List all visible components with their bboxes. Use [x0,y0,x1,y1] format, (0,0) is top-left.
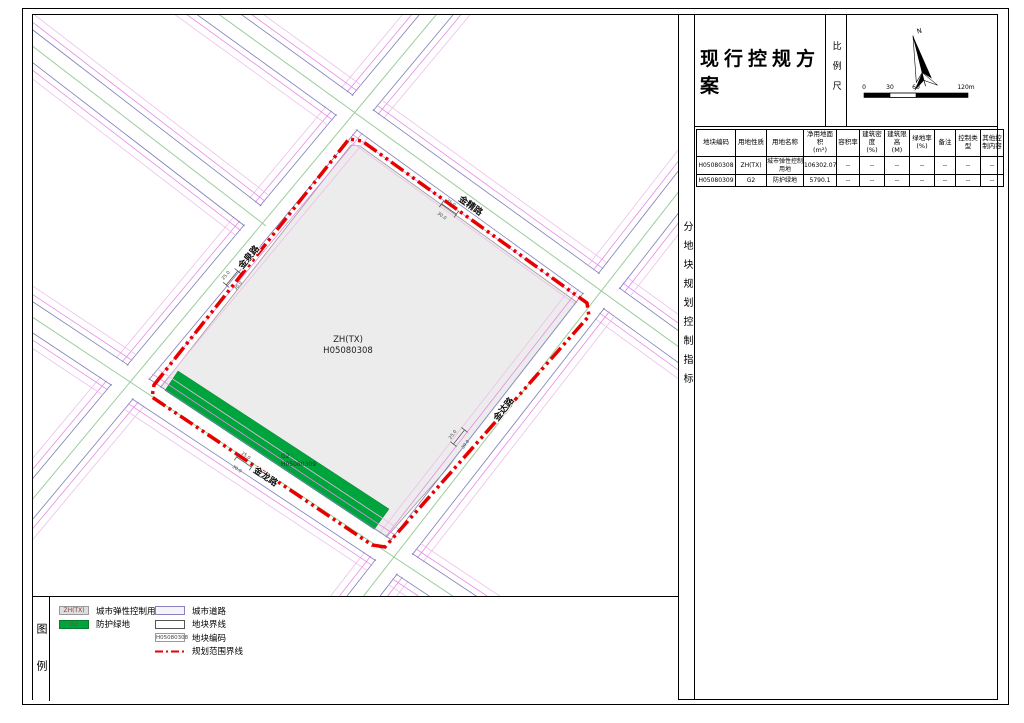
greenbelt-landuse-code: G2 [281,453,290,460]
site-landuse-code: ZH(TX) [333,335,363,345]
indicator-table-head: 地块编码用地性质用地名称净用地面积 (m²)容积率建筑密度 (%)建筑限高 (M… [697,130,1004,157]
legend-items-right: 城市道路地块界线H05080308地块编码规划范围界线 [155,604,243,658]
table-header-cell: 用地名称 [767,130,804,157]
greenbelt-parcel-code: H05080309 [281,461,316,468]
legend-box: 图例 ZH(TX)城市弹性控制用地G2防护绿地 城市道路地块界线H0508030… [33,596,678,701]
table-cell: -- [981,175,1004,187]
table-cell: -- [935,157,956,175]
title-block-header-row: 现行控规方案 比例尺 N [695,15,997,127]
sheet-title: 现行控规方案 [695,15,825,126]
legend-item-label: 城市道路 [192,605,226,617]
title-block: 现行控规方案 比例尺 N [695,15,997,699]
table-header-cell: 净用地面积 (m²) [804,130,837,157]
legend-swatch-text: ZH(TX) [60,607,88,615]
table-header-cell: 其他控制内容 [981,130,1004,157]
planning-sheet: 25.030.025.030.025.030.025.030.0 金泉路 金精路… [0,0,1024,723]
table-header-cell: 用地性质 [736,130,767,157]
legend-item-label: 地块界线 [192,618,226,630]
indicator-table-body: H05080308ZH(TX)城市弹性控制用地106302.07--------… [697,157,1004,187]
table-header-cell: 备注 [935,130,956,157]
north-scale-graphic: N 0 30 60 120m [847,15,997,127]
table-header-cell: 绿地率 (%) [910,130,935,157]
table-row: H05080309G2防护绿地5790.1-------------- [697,175,1004,187]
table-header-cell: 控制类型 [956,130,981,157]
scale-tick: 0 [862,84,866,91]
table-cell: -- [981,157,1004,175]
north-arrow-icon: N [900,26,938,91]
table-cell: -- [837,157,860,175]
table-cell: G2 [736,175,767,187]
scale-tick: 30 [886,84,894,91]
legend-item: 地块界线 [155,618,243,632]
legend-item: H05080308地块编码 [155,631,243,645]
table-cell: -- [837,175,860,187]
table-cell: 106302.07 [804,157,837,175]
table-cell: 防护绿地 [767,175,804,187]
legend-item: ZH(TX)城市弹性控制用地 [59,604,164,618]
table-cell: -- [956,157,981,175]
site-parcel-code: H05080308 [323,346,373,356]
table-header-cell: 建筑密度 (%) [860,130,885,157]
scale-tick: 120m [957,84,974,91]
side-panel-strip: 分地块规划控制指标 [678,15,695,699]
table-header-cell: 建筑限高 (M) [885,130,910,157]
legend-item-label: 地块编码 [192,632,226,644]
legend-swatch-landuse-green: G2 [59,620,89,629]
legend-swatch-redline [155,647,185,656]
drawing-frame: 25.030.025.030.025.030.025.030.0 金泉路 金精路… [32,14,998,700]
legend-vertical-label: 图例 [33,623,49,701]
scale-tick: 60 [912,84,920,91]
indicator-table: 地块编码用地性质用地名称净用地面积 (m²)容积率建筑密度 (%)建筑限高 (M… [696,129,1004,187]
table-row: H05080308ZH(TX)城市弹性控制用地106302.07--------… [697,157,1004,175]
table-cell: -- [860,175,885,187]
north-letter: N [916,27,923,36]
table-cell: -- [935,175,956,187]
scale-bar: 0 30 60 120m [862,84,975,98]
table-cell: -- [885,157,910,175]
legend-label-column: 图例 [33,597,50,701]
table-cell: 城市弹性控制用地 [767,157,804,175]
table-cell: -- [910,157,935,175]
legend-swatch-code: H05080308 [155,633,185,642]
table-header-cell: 容积率 [837,130,860,157]
legend-item: 规划范围界线 [155,645,243,659]
legend-swatch-text: H05080308 [156,634,184,642]
legend-item-label: 城市弹性控制用地 [96,605,164,617]
north-and-scale-cell: N 0 30 60 120m [847,15,997,126]
scale-label-cell: 比例尺 [825,15,847,126]
legend-item: G2防护绿地 [59,618,164,632]
table-header-cell: 地块编码 [697,130,736,157]
table-cell: ZH(TX) [736,157,767,175]
table-cell: -- [860,157,885,175]
legend-items-left: ZH(TX)城市弹性控制用地G2防护绿地 [59,604,164,631]
legend-swatch-road [155,606,185,615]
table-cell: H05080308 [697,157,736,175]
table-cell: -- [910,175,935,187]
planning-map: 25.030.025.030.025.030.025.030.0 金泉路 金精路… [33,15,678,596]
legend-swatch-text: G2 [60,621,88,629]
legend-swatch-landuse-gray: ZH(TX) [59,606,89,615]
side-panel-vertical-label: 分地块规划控制指标 [679,221,694,699]
table-cell: 5790.1 [804,175,837,187]
table-cell: -- [885,175,910,187]
legend-item: 城市道路 [155,604,243,618]
legend-item-label: 规划范围界线 [192,645,243,657]
redline-sample [155,647,185,656]
table-cell: H05080309 [697,175,736,187]
legend-item-label: 防护绿地 [96,618,130,630]
table-cell: -- [956,175,981,187]
scale-label: 比例尺 [830,41,843,101]
legend-swatch-boundary [155,620,185,629]
